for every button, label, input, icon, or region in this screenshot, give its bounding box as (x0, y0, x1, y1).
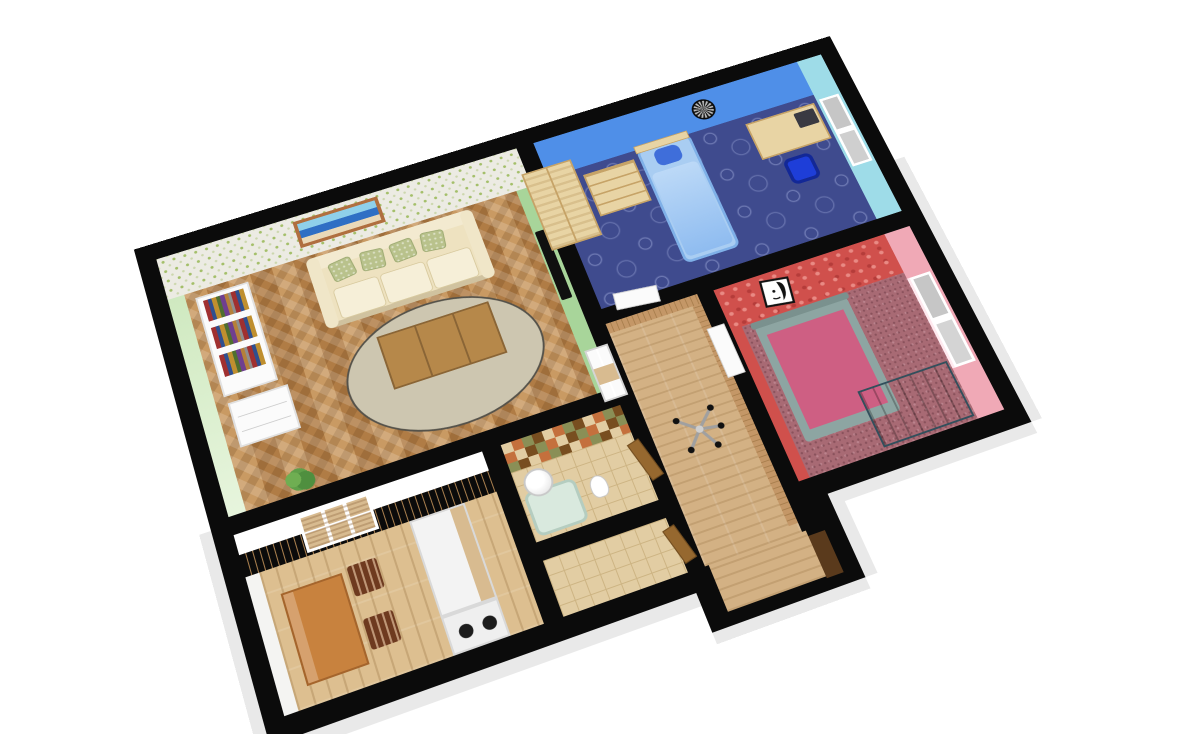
apartment-floor-plan (134, 36, 1073, 734)
floor-plan-scene: { "view": { "type": "3d-floor-plan-aeria… (0, 0, 1200, 734)
drawer-line (242, 415, 291, 432)
sofa-cushion (379, 261, 434, 305)
bathroom (501, 405, 659, 543)
book-row (203, 288, 249, 321)
stove-burner (481, 614, 499, 632)
throw-pillow (419, 229, 447, 253)
sofa-cushion (332, 275, 387, 319)
sofa-cushion (425, 246, 480, 290)
book-row (211, 315, 258, 349)
book-row (219, 343, 266, 377)
stove-burner (457, 622, 475, 640)
throw-pillow (359, 247, 387, 272)
drawer-line (238, 401, 287, 418)
